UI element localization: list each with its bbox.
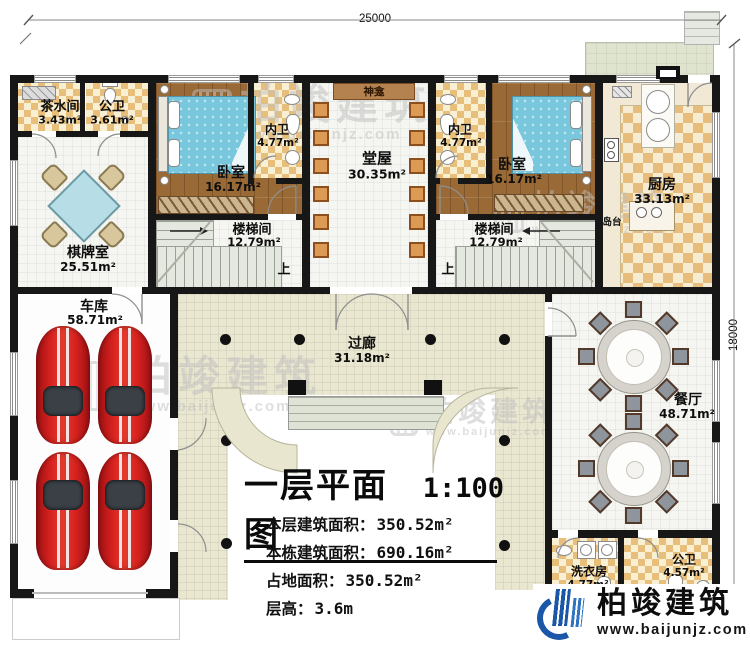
pillow-icon	[570, 139, 582, 167]
column-dot	[221, 538, 232, 549]
room-area-hall: 30.35m²	[348, 167, 406, 182]
stairs-up-label: 上	[441, 259, 454, 278]
room-label-kitchen: 厨房	[648, 174, 676, 194]
window	[10, 352, 18, 416]
terrace	[585, 42, 714, 78]
door-gap	[545, 302, 552, 336]
window	[712, 112, 720, 178]
room-label-pubwc-top: 公卫	[99, 96, 125, 115]
chair-icon	[313, 242, 329, 258]
shrine-cabinet: 神龛	[333, 83, 415, 100]
chair-icon	[313, 158, 329, 174]
room-area-stair-right: 12.79m²	[469, 235, 522, 249]
room-label-bed-right: 卧室	[498, 154, 526, 174]
door-gap	[170, 418, 178, 450]
cutting-board-icon	[612, 86, 632, 98]
lamp-icon	[582, 176, 591, 185]
shrine-label: 神龛	[364, 84, 385, 99]
bed-headboard	[158, 96, 168, 172]
chair-icon	[313, 102, 329, 118]
window	[10, 480, 18, 544]
brand-website: www.baijunjz.com	[597, 622, 748, 638]
sink-icon	[284, 94, 300, 105]
chair-icon	[409, 130, 425, 146]
lamp-icon	[582, 85, 591, 94]
room-area-tea: 3.43m²	[38, 114, 81, 127]
chair-icon	[409, 186, 425, 202]
room-label-chess: 棋牌室	[67, 242, 109, 262]
room-label-tea: 茶水间	[40, 96, 79, 115]
chair-icon	[313, 214, 329, 230]
stat-land-area: 占地面积：350.52m²	[266, 569, 423, 591]
chair-icon	[313, 186, 329, 202]
pan-icon	[651, 207, 662, 218]
dimension-top: 25000	[354, 13, 396, 25]
room-area-corridor: 31.18m²	[334, 351, 390, 365]
basin-icon	[440, 150, 455, 165]
room-label-pubwc-bottom: 公卫	[672, 551, 696, 568]
column-dot	[294, 334, 305, 345]
plan-scale: 1:100	[423, 473, 504, 504]
sink-icon	[440, 94, 456, 105]
entrance-steps	[288, 396, 444, 430]
floor-plan: 25000 18000 柏竣建筑 www.baijunjz.com 柏竣建筑 w…	[0, 0, 750, 650]
staircase-left-run	[156, 246, 282, 289]
basin-icon	[285, 150, 300, 165]
column-dot	[425, 334, 436, 345]
window	[34, 75, 76, 83]
door-gap	[98, 131, 120, 137]
column-dot	[220, 334, 231, 345]
car-icon	[36, 326, 90, 444]
room-area-stair-left: 12.79m²	[227, 235, 280, 249]
staircase-right-run	[455, 246, 597, 289]
room-area-bath-left: 4.77m²	[257, 137, 298, 149]
window	[258, 75, 294, 83]
door-gap	[112, 287, 142, 294]
round-table-icon	[597, 432, 671, 506]
garage-apron	[12, 598, 180, 640]
room-area-kitchen: 33.13m²	[634, 192, 690, 206]
room-area-bed-right: 16.17m²	[486, 172, 542, 186]
pillow-icon	[168, 101, 180, 129]
lamp-icon	[160, 85, 169, 94]
laundry-sink-icon	[556, 545, 572, 556]
sink-icon	[646, 90, 670, 114]
room-label-dining: 餐厅	[674, 389, 702, 409]
window	[616, 75, 660, 83]
car-icon	[98, 326, 152, 444]
window	[444, 75, 478, 83]
column-dot	[221, 435, 232, 446]
room-label-hall: 堂屋	[362, 148, 392, 169]
door-gap	[688, 75, 710, 83]
brand-logo-icon	[537, 586, 589, 640]
stat-floor-area: 本层建筑面积：350.52m²	[266, 513, 454, 535]
chair-icon	[409, 102, 425, 118]
room-label-bath-right: 内卫	[448, 121, 472, 138]
island-label: 岛台	[602, 214, 621, 228]
room-label-bath-left: 内卫	[265, 121, 289, 138]
washer-drum-icon	[601, 544, 613, 556]
room-area-bed-left: 16.17m²	[205, 180, 261, 194]
room-area-pubwc-bottom: 4.57m²	[663, 567, 704, 579]
chair-icon	[409, 242, 425, 258]
window	[168, 75, 240, 83]
stat-building-area: 本栋建筑面积：690.16m²	[266, 541, 454, 563]
room-area-pubwc-top: 3.61m²	[90, 114, 133, 127]
stat-floor-height: 层高：3.6m	[266, 597, 353, 619]
column-dot	[499, 334, 510, 345]
stairs-up-label: 上	[277, 259, 290, 278]
room-area-bath-right: 4.77m²	[440, 137, 481, 149]
door-gap	[32, 131, 56, 137]
room-area-dining: 48.71m²	[659, 407, 715, 421]
lamp-icon	[160, 176, 169, 185]
room-area-chess: 25.51m²	[60, 260, 116, 274]
room-label-bed-left: 卧室	[217, 162, 245, 182]
room-area-garage: 58.71m²	[67, 313, 123, 327]
terrace-door-icon	[656, 66, 680, 79]
window	[498, 75, 570, 83]
column-dot	[499, 435, 510, 446]
brand-logo: 柏竣建筑 www.baijunjz.com	[533, 584, 750, 642]
room-label-laundry: 洗衣房	[571, 563, 607, 580]
car-icon	[98, 452, 152, 570]
pillow-icon	[168, 139, 180, 167]
porch-column	[288, 380, 306, 395]
burner-icon	[607, 151, 615, 159]
bed-headboard	[582, 96, 592, 172]
room-label-corridor: 过廊	[348, 333, 376, 353]
sink-icon	[646, 118, 670, 142]
wardrobe-icon	[158, 196, 254, 214]
dimension-right: 18000	[728, 314, 740, 356]
round-table-icon	[597, 320, 671, 394]
chair-icon	[409, 158, 425, 174]
chair-icon	[409, 214, 425, 230]
brand-name: 柏竣建筑	[597, 588, 748, 620]
burner-icon	[607, 141, 615, 149]
washer-drum-icon	[580, 544, 592, 556]
pillow-icon	[570, 101, 582, 129]
kitchen-counter-left	[603, 105, 621, 287]
pan-icon	[636, 207, 647, 218]
garage-door-line	[32, 592, 148, 594]
wardrobe-icon	[494, 194, 584, 212]
chair-icon	[313, 130, 329, 146]
car-icon	[36, 452, 90, 570]
door-gap	[170, 520, 178, 552]
window	[712, 442, 720, 504]
porch-column	[424, 380, 442, 395]
terrace-steps	[684, 11, 720, 45]
window	[10, 160, 18, 226]
